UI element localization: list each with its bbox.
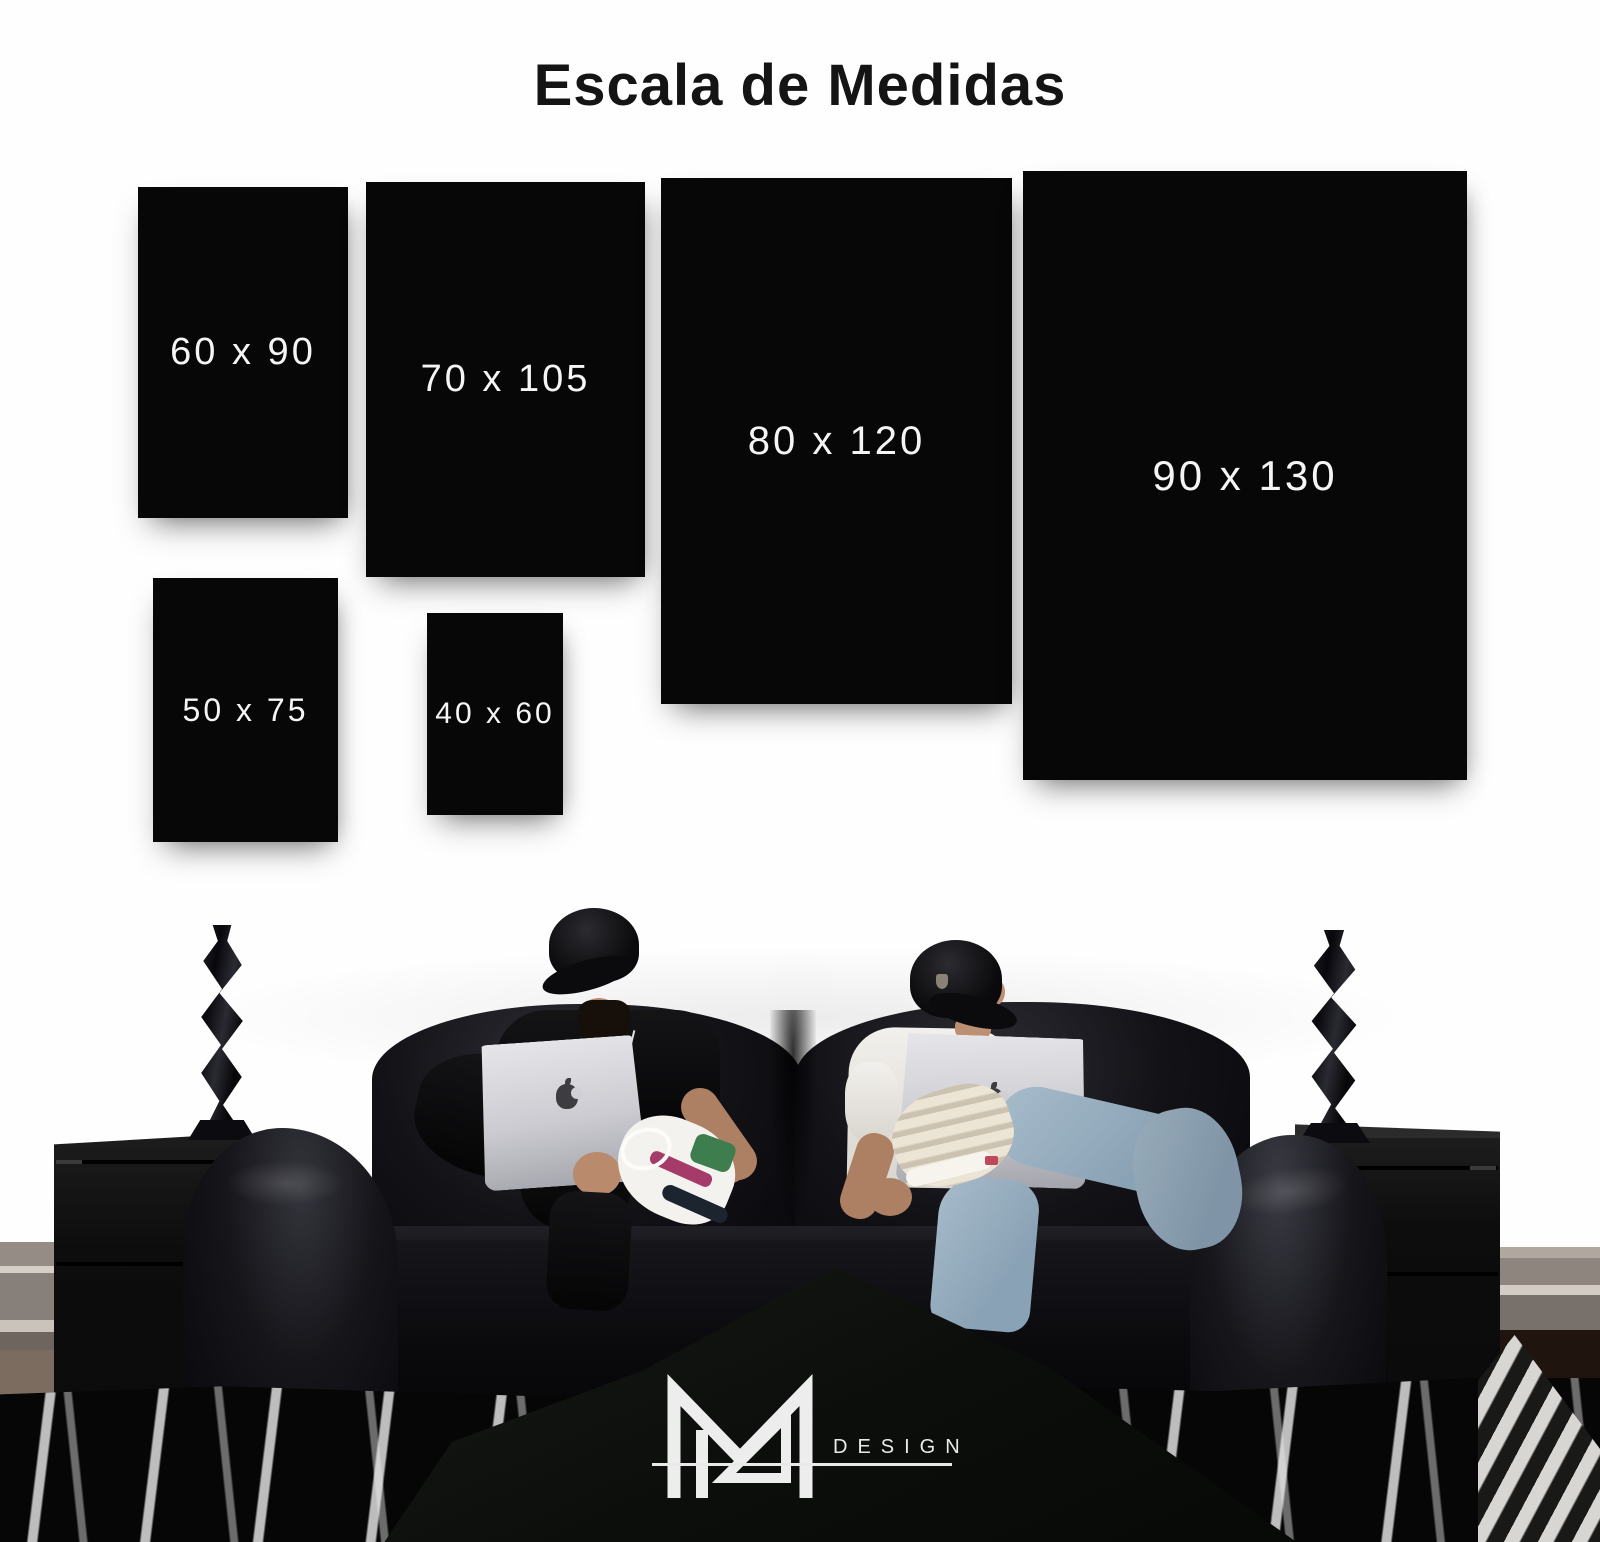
size-label-50x75: 50 x 75: [183, 692, 309, 729]
right-baseboard: [1497, 1285, 1600, 1295]
apple-logo-icon: [556, 1084, 578, 1109]
size-box-90x130: 90 x 130: [1023, 171, 1467, 780]
right-man-sleeve: [845, 1062, 899, 1142]
size-label-80x120: 80 x 120: [748, 419, 925, 464]
right-wall-panel-lower: [1497, 1258, 1600, 1285]
size-box-70x105: 70 x 105: [366, 182, 645, 577]
right-cabinet-handle: [1470, 1166, 1496, 1170]
page-title: Escala de Medidas: [0, 52, 1600, 119]
size-box-80x120: 80 x 120: [661, 178, 1012, 704]
left-man-shin-sock: [545, 1190, 633, 1312]
size-box-40x60: 40 x 60: [427, 613, 563, 815]
couch-back-seam: [770, 1010, 816, 1220]
brand-design-label: DESIGN: [833, 1436, 970, 1459]
size-label-40x60: 40 x 60: [435, 697, 554, 731]
right-man-hand: [868, 1178, 912, 1216]
size-label-90x130: 90 x 130: [1152, 452, 1337, 500]
size-label-70x105: 70 x 105: [421, 358, 591, 401]
size-scale-infographic: Escala de Medidas 60 x 90 70 x 105 80 x …: [0, 0, 1600, 1542]
right-baseboard-shadow: [1497, 1295, 1600, 1330]
sneaker-label: [985, 1156, 998, 1165]
brand-monogram-icon: [652, 1374, 832, 1506]
logo-rule-line: [652, 1463, 952, 1466]
size-box-50x75: 50 x 75: [153, 578, 338, 842]
left-man-knee-skin: [573, 1152, 621, 1196]
cap-shield-badge: [936, 974, 948, 989]
left-cabinet-handle: [56, 1160, 82, 1164]
leather-sheen: [225, 1160, 345, 1206]
right-wall-panel: [1497, 1247, 1600, 1258]
size-label-60x90: 60 x 90: [170, 331, 316, 374]
size-box-60x90: 60 x 90: [138, 187, 348, 518]
right-man-lower-leg: [929, 1174, 1042, 1334]
